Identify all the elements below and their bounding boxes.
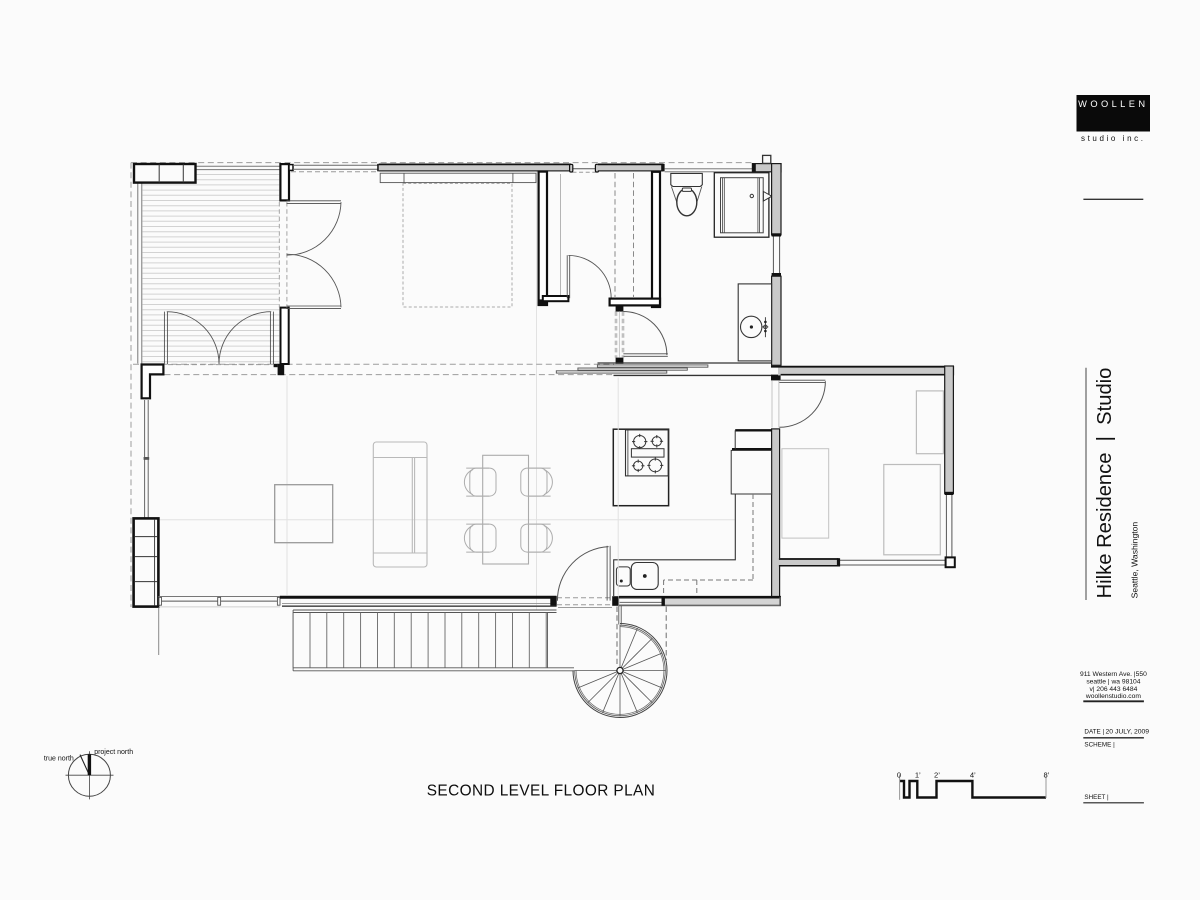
svg-text:seattle | wa 98104: seattle | wa 98104	[1086, 678, 1140, 685]
svg-text:8’: 8’	[1043, 770, 1049, 779]
svg-text:project north: project north	[94, 749, 133, 756]
svg-text:4’: 4’	[970, 770, 976, 779]
svg-text:911 Western Ave. |550: 911 Western Ave. |550	[1080, 671, 1147, 678]
svg-text:woollenstudio.com: woollenstudio.com	[1085, 693, 1141, 700]
svg-text:SCHEME |: SCHEME |	[1084, 741, 1115, 748]
svg-text:v| 206 443 6484: v| 206 443 6484	[1089, 686, 1137, 693]
svg-text:Seattle, Washington: Seattle, Washington	[1130, 522, 1140, 599]
svg-text:SECOND LEVEL FLOOR PLAN: SECOND LEVEL FLOOR PLAN	[427, 782, 655, 799]
svg-text:true north: true north	[44, 756, 74, 763]
svg-text:20 JULY, 2009: 20 JULY, 2009	[1106, 728, 1150, 735]
svg-text:2’: 2’	[934, 770, 940, 779]
svg-text:DATE |: DATE |	[1084, 728, 1104, 735]
svg-text:WOOLLEN: WOOLLEN	[1078, 99, 1148, 109]
svg-text:1’: 1’	[915, 770, 921, 779]
svg-text:SHEET |: SHEET |	[1084, 794, 1109, 801]
svg-text:0: 0	[897, 770, 901, 779]
svg-text:studio inc.: studio inc.	[1081, 134, 1146, 143]
svg-text:Hilke Residence | Studio: Hilke Residence | Studio	[1094, 368, 1116, 599]
